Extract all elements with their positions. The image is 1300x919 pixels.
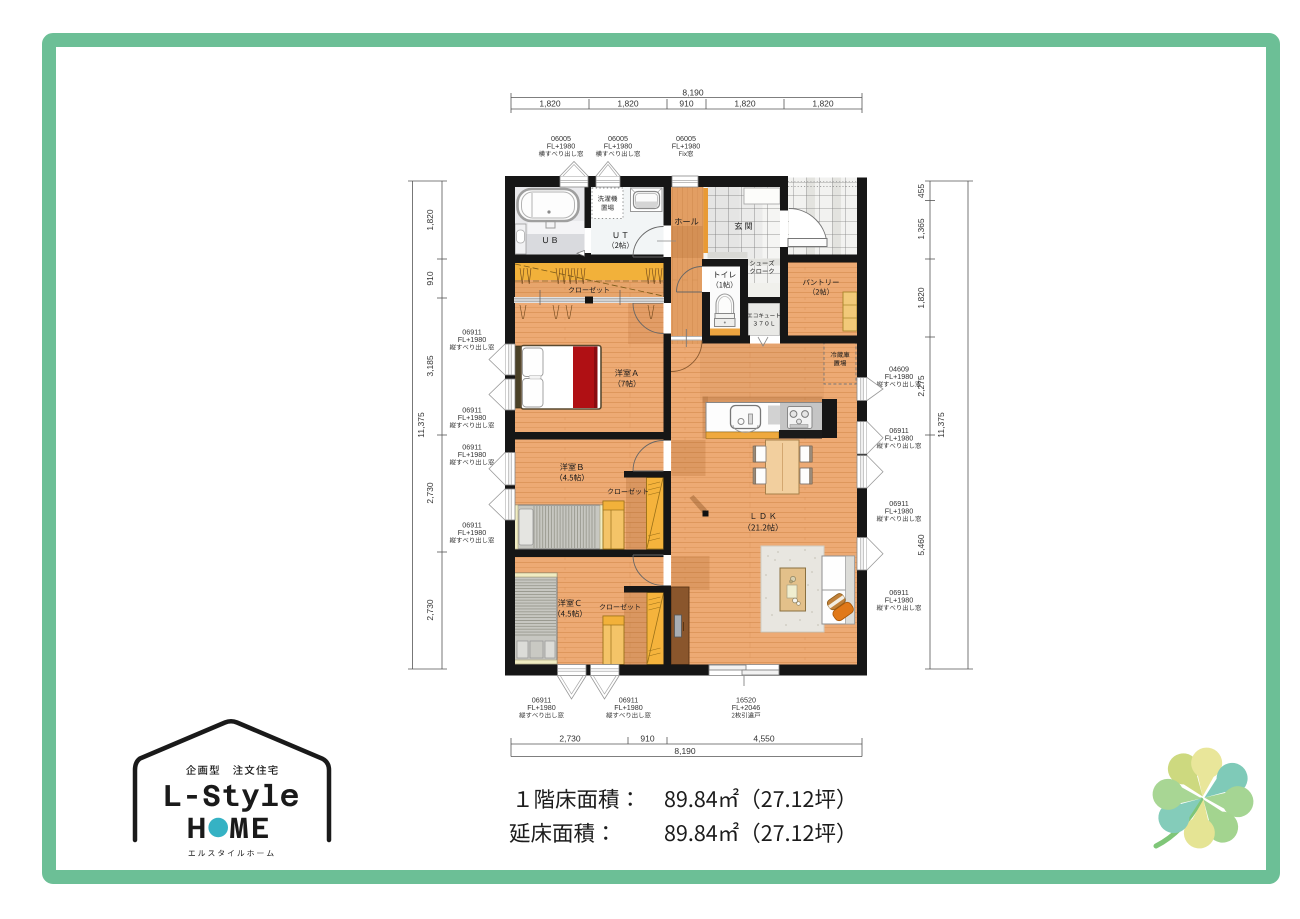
svg-text:910: 910 xyxy=(425,271,435,285)
svg-text:1,365: 1,365 xyxy=(916,218,926,240)
svg-text:5,460: 5,460 xyxy=(916,534,926,556)
svg-text:2,730: 2,730 xyxy=(425,599,435,621)
svg-text:FL+1980: FL+1980 xyxy=(604,142,633,151)
svg-text:1,820: 1,820 xyxy=(539,99,561,109)
svg-text:2,730: 2,730 xyxy=(559,734,581,744)
svg-text:FL+2046: FL+2046 xyxy=(732,703,761,712)
svg-text:1,820: 1,820 xyxy=(617,99,639,109)
svg-text:1,820: 1,820 xyxy=(734,99,756,109)
svg-text:FL+1980: FL+1980 xyxy=(458,528,487,537)
svg-text:FL+1980: FL+1980 xyxy=(885,507,914,516)
svg-text:2,730: 2,730 xyxy=(425,482,435,504)
svg-text:4,550: 4,550 xyxy=(753,734,775,744)
svg-text:11,375: 11,375 xyxy=(416,412,426,438)
svg-text:910: 910 xyxy=(679,99,693,109)
svg-text:FL+1980: FL+1980 xyxy=(614,703,643,712)
svg-text:1,820: 1,820 xyxy=(425,209,435,231)
svg-text:FL+1980: FL+1980 xyxy=(885,372,914,381)
svg-text:FL+1980: FL+1980 xyxy=(458,413,487,422)
svg-text:FL+1980: FL+1980 xyxy=(458,335,487,344)
svg-text:FL+1980: FL+1980 xyxy=(885,596,914,605)
svg-text:455: 455 xyxy=(916,184,926,198)
svg-text:FL+1980: FL+1980 xyxy=(547,142,576,151)
svg-text:FL+1980: FL+1980 xyxy=(527,703,556,712)
svg-text:11,375: 11,375 xyxy=(936,412,946,438)
svg-text:FL+1980: FL+1980 xyxy=(458,450,487,459)
svg-text:3,185: 3,185 xyxy=(425,355,435,377)
svg-text:FL+1980: FL+1980 xyxy=(672,142,701,151)
svg-text:1,820: 1,820 xyxy=(916,287,926,309)
svg-text:FL+1980: FL+1980 xyxy=(885,434,914,443)
svg-text:910: 910 xyxy=(640,734,654,744)
svg-text:8,190: 8,190 xyxy=(674,746,696,756)
svg-text:8,190: 8,190 xyxy=(682,88,704,98)
svg-text:1,820: 1,820 xyxy=(812,99,834,109)
